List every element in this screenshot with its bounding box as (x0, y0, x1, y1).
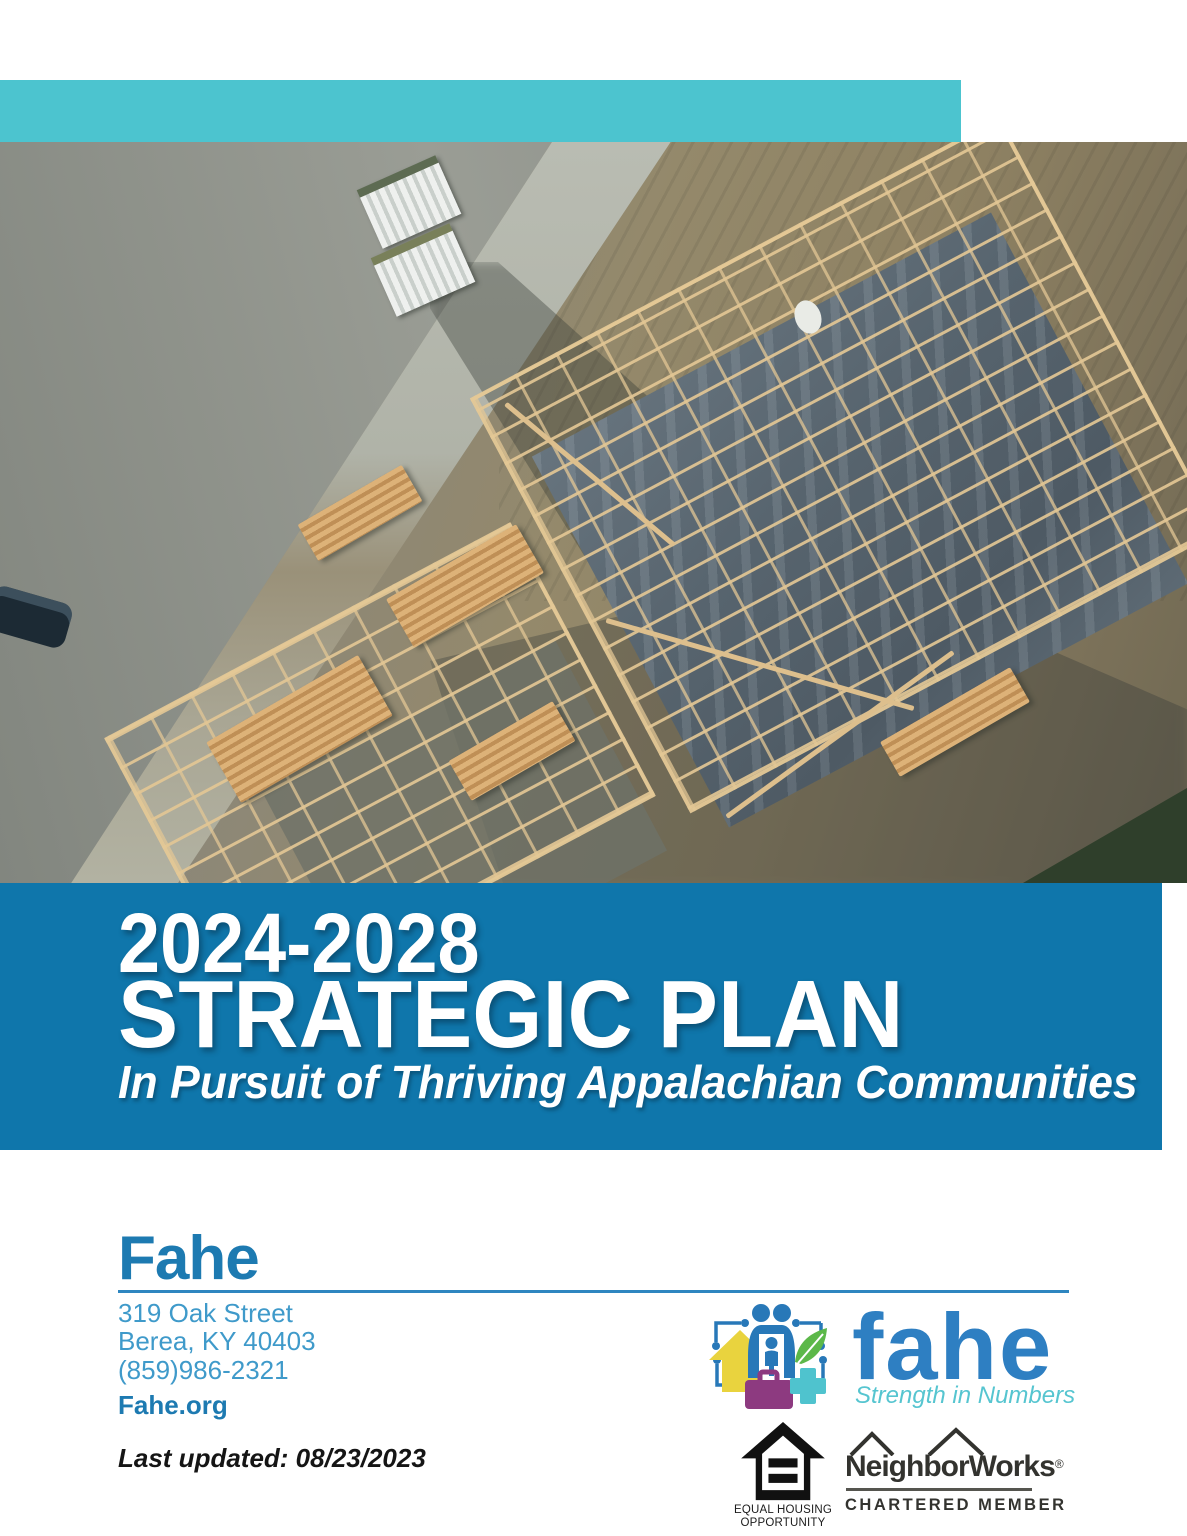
phone-number: (859)986-2321 (118, 1357, 289, 1383)
address-line-2: Berea, KY 40403 (118, 1328, 316, 1356)
registered-trademark-icon: ® (1055, 1457, 1063, 1471)
equal-housing-logo: EQUAL HOUSING OPPORTUNITY (733, 1422, 833, 1529)
title-subtitle: In Pursuit of Thriving Appalachian Commu… (118, 1059, 1138, 1105)
medical-cross-icon (790, 1368, 826, 1404)
fahe-tagline: Strength in Numbers (855, 1384, 1075, 1408)
heading-rule (118, 1290, 1069, 1293)
cover-photo (0, 142, 1187, 883)
title-main: STRATEGIC PLAN (118, 967, 903, 1063)
teal-accent-band (0, 80, 961, 142)
last-updated-label: Last updated: 08/23/2023 (118, 1445, 426, 1471)
equal-housing-house-icon (737, 1422, 829, 1502)
org-name-heading: Fahe (118, 1228, 259, 1290)
fahe-logo-icon (703, 1296, 833, 1412)
title-band: 2024-2028 STRATEGIC PLAN In Pursuit of T… (0, 883, 1162, 1150)
address-line-1: 319 Oak Street (118, 1300, 316, 1328)
address-block: 319 Oak Street Berea, KY 40403 (118, 1300, 316, 1355)
website-link[interactable]: Fahe.org (118, 1392, 228, 1418)
equal-housing-label: EQUAL HOUSING OPPORTUNITY (733, 1504, 833, 1529)
neighborworks-name: NeighborWorks® (845, 1452, 1063, 1482)
neighborworks-subtitle: CHARTERED MEMBER (845, 1496, 1067, 1515)
neighborworks-divider (846, 1488, 1032, 1491)
cover-page: 2024-2028 STRATEGIC PLAN In Pursuit of T… (0, 0, 1187, 1536)
family-icon (748, 1304, 795, 1378)
fahe-wordmark: fahe (852, 1300, 1053, 1394)
